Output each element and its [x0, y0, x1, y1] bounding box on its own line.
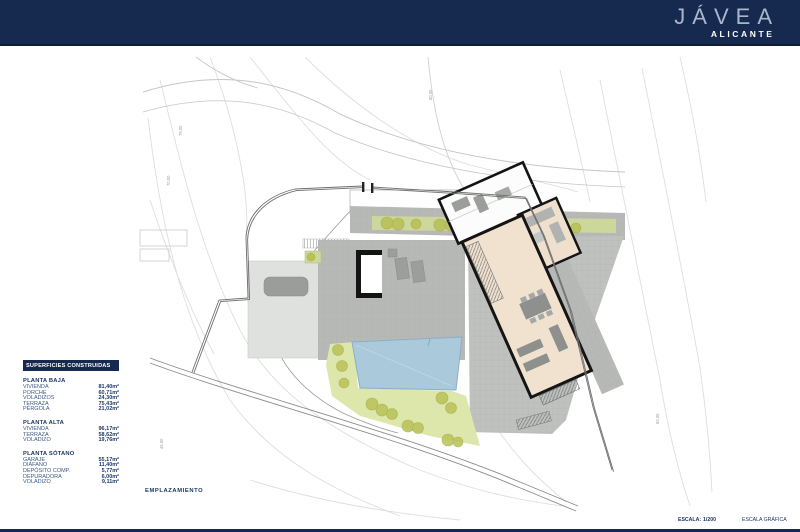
- area-value: 9,11m²: [102, 480, 119, 486]
- areas-table-sections: PLANTA BAJAVIVIENDA81,40m²PORCHE60,71m²V…: [23, 378, 119, 486]
- scale-label: ESCALA:: [678, 517, 701, 523]
- area-value: 21,02m²: [99, 407, 120, 413]
- scale-value: 1/200: [703, 517, 716, 523]
- svg-text:60.00: 60.00: [655, 413, 660, 424]
- pool: [352, 337, 462, 390]
- area-label: PÉRGOLA: [23, 407, 50, 413]
- section-name: PLANTA SÓTANO: [23, 451, 119, 457]
- site-plan-drawing: 80.00 75.00 70.00 60.00 45.00: [0, 0, 800, 532]
- areas-section: PLANTA BAJAVIVIENDA81,40m²PORCHE60,71m²V…: [23, 378, 119, 413]
- area-label: VOLADIZO: [23, 480, 51, 486]
- svg-text:70.00: 70.00: [166, 175, 171, 186]
- area-row: VOLADIZO9,11m²: [23, 480, 119, 486]
- graphic-scale-label: ESCALA GRÁFICA: [742, 517, 787, 523]
- plan-caption: EMPLAZAMIENTO: [145, 488, 203, 494]
- areas-table: SUPERFICIES CONSTRUIDAS PLANTA BAJAVIVIE…: [23, 360, 119, 486]
- areas-table-title: SUPERFICIES CONSTRUIDAS: [23, 360, 119, 371]
- area-row: PÉRGOLA21,02m²: [23, 407, 119, 413]
- areas-section: PLANTA SÓTANOGARAJE55,17m²DIÁFANO11,40m²…: [23, 451, 119, 486]
- svg-text:45.00: 45.00: [159, 438, 164, 449]
- brand: JÁVEA ALICANTE: [674, 5, 772, 39]
- areas-section: PLANTA ALTAVIVIENDA96,17m²TERRAZA58,62m²…: [23, 420, 119, 444]
- svg-text:75.00: 75.00: [178, 125, 183, 136]
- province-subtitle: ALICANTE: [674, 29, 774, 39]
- area-label: VOLADIZO: [23, 438, 51, 444]
- svg-text:80.00: 80.00: [428, 89, 433, 100]
- house: [439, 156, 637, 423]
- city-title: JÁVEA: [674, 5, 779, 29]
- courtyard-walls: [356, 250, 382, 298]
- area-row: VOLADIZO19,76m²: [23, 438, 119, 444]
- car: [264, 277, 308, 296]
- neighbor-buildings: [140, 230, 187, 261]
- footer-scale: ESCALA: 1/200 ESCALA GRÁFICA: [0, 517, 800, 527]
- sheet: 80.00 75.00 70.00 60.00 45.00 JÁVEA ALIC…: [0, 0, 800, 532]
- header-bar: JÁVEA ALICANTE: [0, 0, 800, 46]
- area-value: 19,76m²: [99, 438, 120, 444]
